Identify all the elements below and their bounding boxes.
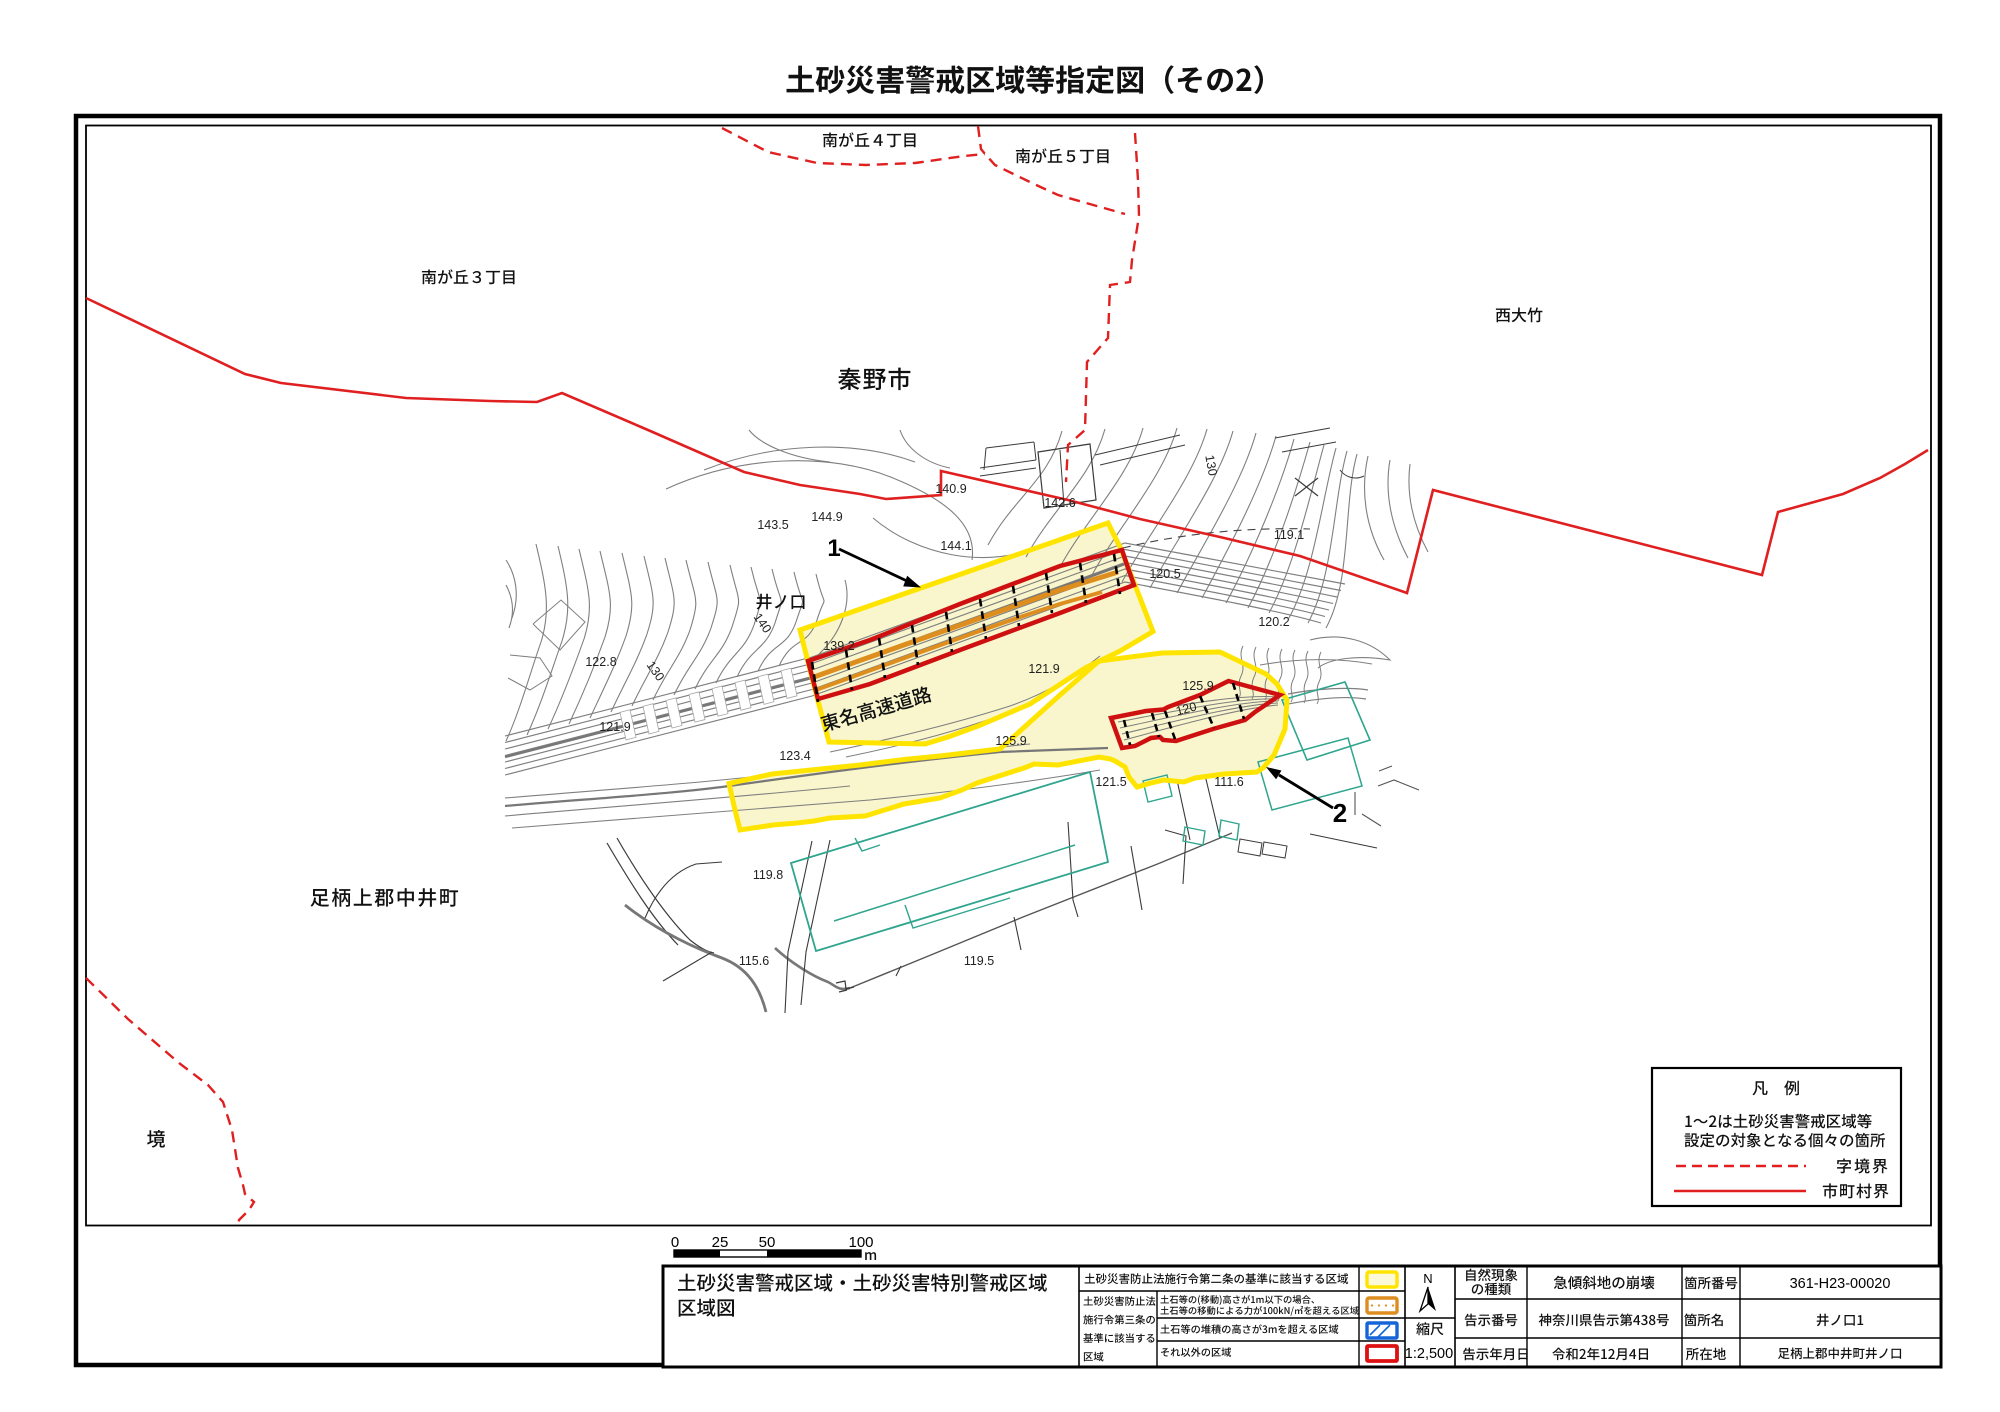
svg-text:121.9: 121.9 <box>599 720 630 734</box>
svg-text:361-H23-00020: 361-H23-00020 <box>1790 1276 1891 1292</box>
svg-text:125.9: 125.9 <box>995 734 1026 748</box>
svg-text:111.6: 111.6 <box>1214 775 1243 789</box>
svg-text:50: 50 <box>759 1234 776 1251</box>
svg-text:142.6: 142.6 <box>1044 496 1075 510</box>
svg-text:121.5: 121.5 <box>1095 775 1126 789</box>
svg-text:143.5: 143.5 <box>757 518 788 532</box>
svg-text:0: 0 <box>671 1234 679 1251</box>
svg-text:N: N <box>1423 1271 1432 1286</box>
svg-text:100: 100 <box>848 1234 873 1251</box>
svg-text:122.8: 122.8 <box>585 655 616 669</box>
svg-text:119.8: 119.8 <box>753 868 783 882</box>
svg-text:125.9: 125.9 <box>1182 679 1213 693</box>
svg-text:140.9: 140.9 <box>935 482 966 496</box>
svg-text:120.2: 120.2 <box>1258 615 1289 629</box>
svg-text:1:2,500: 1:2,500 <box>1405 1346 1453 1362</box>
svg-text:144.1: 144.1 <box>940 539 971 553</box>
svg-text:144.9: 144.9 <box>811 510 842 524</box>
svg-text:115.6: 115.6 <box>739 954 769 968</box>
svg-text:119.1: 119.1 <box>1274 528 1304 542</box>
svg-text:120.5: 120.5 <box>1149 567 1180 581</box>
svg-text:119.5: 119.5 <box>964 954 994 968</box>
svg-text:1: 1 <box>827 535 840 562</box>
svg-text:25: 25 <box>712 1234 729 1251</box>
svg-text:121.9: 121.9 <box>1028 662 1059 676</box>
svg-text:123.4: 123.4 <box>779 749 810 763</box>
svg-text:139.2: 139.2 <box>823 639 854 653</box>
svg-text:2: 2 <box>1333 798 1347 828</box>
